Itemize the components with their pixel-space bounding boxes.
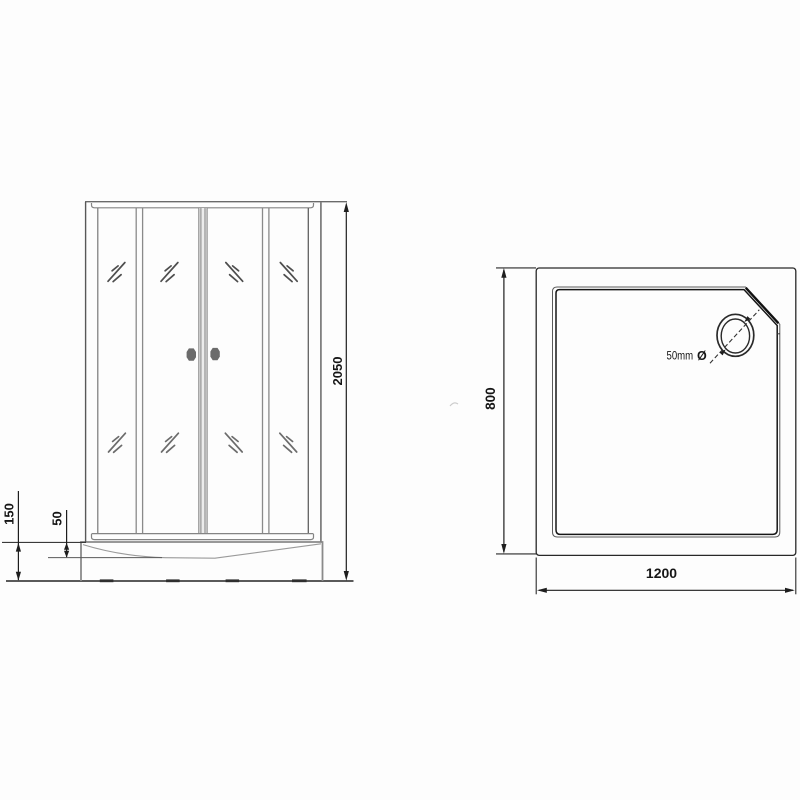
svg-text:50: 50 (50, 511, 65, 525)
svg-text:Ø: Ø (697, 349, 707, 363)
svg-text:150: 150 (2, 503, 17, 525)
svg-text:800: 800 (483, 387, 498, 410)
svg-text:2050: 2050 (330, 357, 345, 386)
svg-text:50mm: 50mm (667, 350, 694, 363)
svg-text:1200: 1200 (646, 565, 677, 581)
